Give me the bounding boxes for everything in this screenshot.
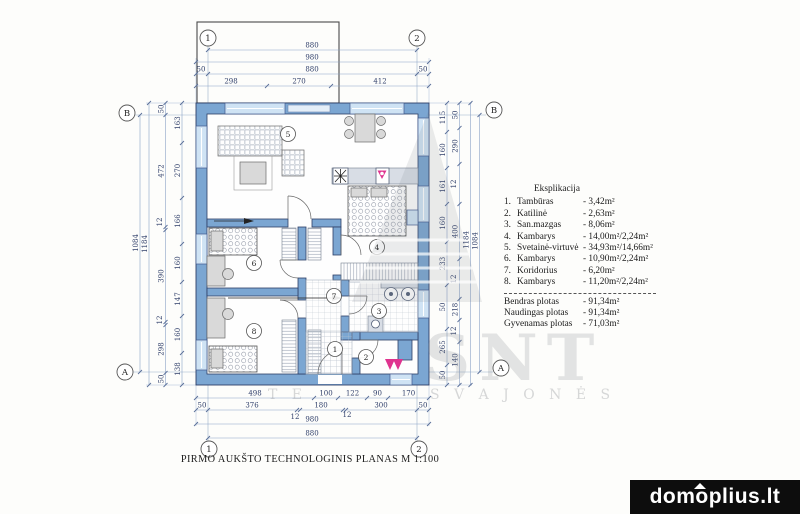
grid-bubble-B-right: B: [486, 102, 502, 118]
dim-label: 50: [419, 66, 428, 74]
grid-bubble-B-left: B: [119, 105, 135, 121]
room-bubble-2: 2: [359, 350, 374, 365]
dim-label: 50: [158, 375, 166, 384]
legend-heading: Eksplikacija: [534, 184, 704, 195]
domoplius-watermark-text: domoplius.lt: [650, 485, 781, 508]
dim-label: 12: [450, 180, 458, 189]
grid-bubble-2-top: 2: [409, 30, 425, 46]
svg-text:2: 2: [364, 353, 369, 362]
dim-label: 115: [439, 111, 447, 124]
svg-text:B: B: [491, 106, 497, 116]
dim-label: 147: [174, 292, 182, 305]
drawing-title: PIRMO AUKŠTO TECHNOLOGINIS PLANAS M 1:10…: [140, 454, 480, 465]
vent-icon: [334, 169, 347, 183]
dim-label: 880: [305, 430, 318, 438]
room-bubble-8: 8: [247, 324, 262, 339]
dim-label: 376: [245, 402, 259, 410]
dim-label: 1084: [132, 234, 140, 252]
dim-label: 472: [158, 164, 166, 177]
dim-label: 50: [197, 66, 206, 74]
legend-item: 3.San.mazgas- 8,06m²: [504, 220, 704, 231]
dim-label: 12: [343, 411, 352, 419]
dim-label: 50: [419, 402, 428, 410]
room-bubble-3: 3: [372, 304, 387, 319]
room-bubble-5: 5: [281, 127, 296, 142]
dim-label: 390: [158, 269, 166, 282]
dim-label: 122: [346, 390, 359, 398]
room-bubble-1: 1: [328, 342, 343, 357]
bed-room6: [209, 228, 257, 255]
dim-label: 498: [248, 390, 261, 398]
legend-total: Bendras plotas- 91,34m²: [504, 297, 704, 308]
svg-text:A: A: [121, 368, 129, 378]
svg-text:8: 8: [252, 327, 257, 336]
legend-item: 7.Koridorius- 6,20m²: [504, 266, 704, 277]
bed-room8: [209, 346, 257, 372]
dim-label: 138: [174, 362, 182, 375]
legend-separator: [504, 293, 656, 294]
legend-total: Gyvenamas plotas- 71,03m²: [504, 319, 704, 330]
dim-label: 298: [158, 342, 166, 355]
legend-item: 8.Kambarys- 11,20m²/2,24m²: [504, 277, 704, 288]
svg-text:1: 1: [333, 345, 338, 354]
canopy-outline: [197, 22, 339, 103]
room-bubble-7: 7: [327, 289, 342, 304]
legend-total: Naudingas plotas- 91,34m²: [504, 308, 704, 319]
legend-item: 2.Katilinė- 2,63m²: [504, 209, 704, 220]
dim-label: 270: [292, 78, 305, 86]
legend: Eksplikacija 1.Tambūras- 3,42m² 2.Katili…: [504, 184, 704, 331]
dim-label: 166: [174, 214, 182, 228]
dim-label: 412: [373, 78, 386, 86]
dim-label: 160: [439, 143, 447, 156]
dim-label: 12: [156, 316, 164, 325]
dim-label: 180: [314, 402, 327, 410]
legend-item: 6.Kambarys- 10,90m²/2,24m²: [504, 254, 704, 265]
legend-item: 4.Kambarys- 14,00m²/2,24m²: [504, 232, 704, 243]
watermark-big-text: SNT: [424, 321, 603, 396]
room-bubble-6: 6: [247, 256, 262, 271]
svg-text:B: B: [124, 109, 130, 119]
dim-label: 1084: [472, 232, 480, 250]
entrance-opening: [318, 375, 342, 384]
dim-label: 880: [305, 42, 318, 50]
dim-label: 298: [224, 78, 237, 86]
dim-label: 218: [452, 303, 460, 316]
dim-label: 100: [319, 390, 332, 398]
floor-plan-page: 880 980 50 880 50 298 270 412 498 100 12…: [0, 0, 800, 514]
dim-label: 12: [156, 218, 164, 227]
dim-label: 170: [402, 390, 415, 398]
dim-label: 50: [452, 111, 460, 120]
dim-label: 290: [452, 139, 460, 152]
dim-label: 160: [174, 328, 182, 341]
dim-label: 50: [198, 402, 207, 410]
svg-text:6: 6: [252, 259, 257, 268]
dim-label: 50: [158, 105, 166, 114]
dim-label: 163: [174, 116, 182, 129]
grid-bubble-A-left: A: [117, 364, 133, 380]
svg-text:7: 7: [332, 292, 337, 301]
grid-bubble-1-top: 1: [200, 30, 216, 46]
dim-label: 980: [305, 416, 318, 424]
dim-label: 270: [174, 164, 182, 177]
dim-label: 90: [373, 390, 382, 398]
svg-text:1: 1: [205, 34, 210, 44]
watermark-tagline-left: T E: [268, 387, 307, 403]
watermark-tagline: S V A J O N Ė S: [430, 385, 615, 403]
dim-label: 1184: [141, 235, 149, 253]
legend-item: 5.Svetainė-virtuvė- 34,93m²/14,66m²: [504, 243, 704, 254]
domoplius-watermark: domoplius.lt: [630, 480, 800, 514]
dim-label: 300: [374, 402, 387, 410]
dim-label: 980: [305, 54, 318, 62]
house-roof-icon: [694, 483, 706, 489]
legend-item: 1.Tambūras- 3,42m²: [504, 197, 704, 208]
svg-text:5: 5: [286, 130, 291, 139]
dim-label: 880: [305, 66, 318, 74]
dim-label: 12: [291, 413, 300, 421]
svg-text:3: 3: [377, 307, 382, 316]
dim-label: 50: [439, 303, 447, 312]
dim-label: 160: [174, 256, 182, 269]
svg-text:2: 2: [414, 34, 419, 44]
